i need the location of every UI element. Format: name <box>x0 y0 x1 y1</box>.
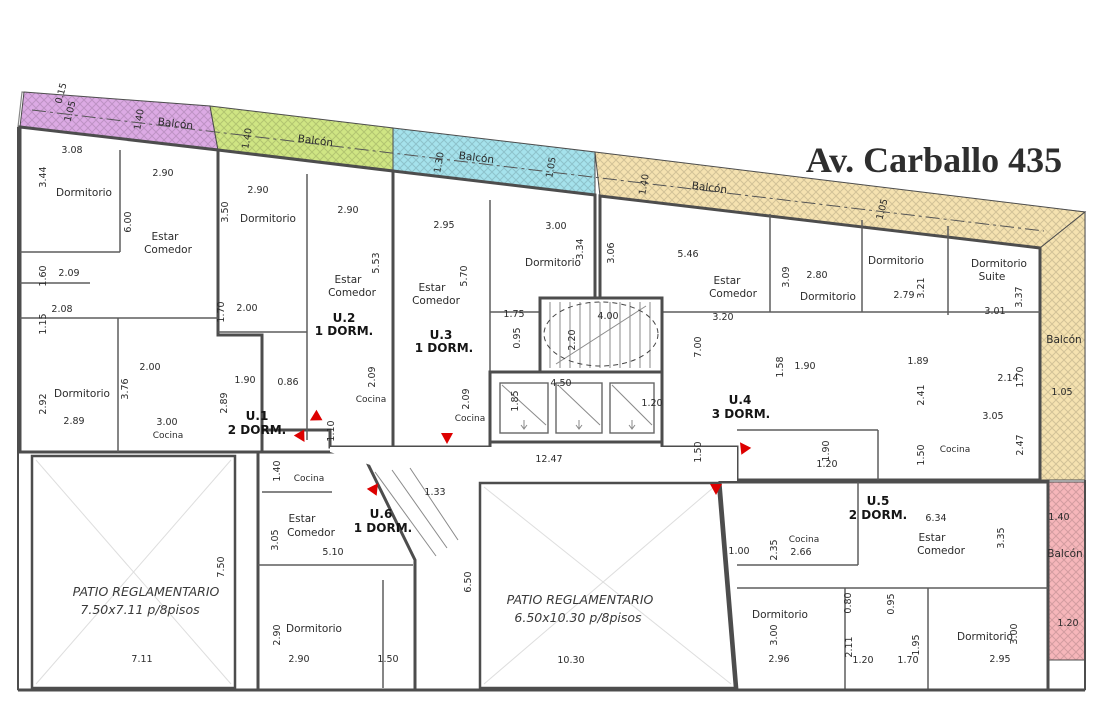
unit-label: 1 DORM. <box>354 521 412 535</box>
patio-center <box>480 483 735 688</box>
dimension-label: 7.11 <box>131 654 152 665</box>
unit-label: 2 DORM. <box>228 423 286 437</box>
room-label: Estar <box>335 274 363 286</box>
room-label: Estar <box>919 532 947 544</box>
dimension-label: 2.09 <box>461 388 472 409</box>
unit-label: U.5 <box>867 494 890 508</box>
dimension-label: 1.70 <box>1015 366 1026 387</box>
dimension-label: 3.00 <box>545 221 566 232</box>
dimension-label: 7.00 <box>693 336 704 357</box>
room-label: Dormitorio <box>957 631 1013 643</box>
unit-label: 3 DORM. <box>712 407 770 421</box>
dimension-label: 1.70 <box>897 655 918 666</box>
dimension-label: 0.80 <box>843 592 854 613</box>
dimension-label: 1.75 <box>503 309 524 320</box>
plan-title: Av. Carballo 435 <box>806 140 1062 180</box>
unit-label: 2 DORM. <box>849 508 907 522</box>
room-label: Dormitorio <box>56 187 112 199</box>
room-label: Cocina <box>455 414 485 424</box>
dimension-label: 2.00 <box>236 303 257 314</box>
dimension-label: 1.50 <box>693 441 704 462</box>
dimension-label: 3.21 <box>916 277 927 298</box>
dimension-label: 1.33 <box>424 487 445 498</box>
dimension-label: 2.08 <box>51 304 72 315</box>
unit-label: U.6 <box>370 507 393 521</box>
dimension-label: 2.80 <box>806 270 827 281</box>
room-label: Balcón <box>1046 334 1081 346</box>
dimension-label: 1.20 <box>1057 618 1078 629</box>
dimension-label: 3.76 <box>120 378 131 399</box>
staircase <box>540 298 662 372</box>
room-label: Dormitorio <box>971 258 1027 270</box>
unit-label: U.2 <box>333 311 356 325</box>
dimension-label: 1.50 <box>916 444 927 465</box>
room-label: Comedor <box>709 288 758 300</box>
dimension-label: 2.90 <box>288 654 309 665</box>
dimension-label: 2.96 <box>768 654 789 665</box>
dimension-label: 2.90 <box>247 185 268 196</box>
dimension-label: 2.00 <box>139 362 160 373</box>
dimension-label: 2.90 <box>152 168 173 179</box>
room-label: Dormitorio <box>800 291 856 303</box>
dimension-label: 1.89 <box>907 356 928 367</box>
dimension-label: 1.00 <box>728 546 749 557</box>
room-label: Dormitorio <box>752 609 808 621</box>
dimension-label: 3.44 <box>38 166 49 187</box>
dimension-label: 5.46 <box>677 249 698 260</box>
patio-label: PATIO REGLAMENTARIO <box>73 584 220 599</box>
dimension-label: 2.89 <box>219 392 230 413</box>
dimension-label: 4.50 <box>550 378 571 389</box>
dimension-label: 1.90 <box>794 361 815 372</box>
dimension-label: 1.70 <box>216 301 227 322</box>
dimension-label: 1.40 <box>1048 512 1069 523</box>
dimension-label: 5.53 <box>371 252 382 273</box>
dimension-label: 3.00 <box>156 417 177 428</box>
dimension-label: 2.90 <box>337 205 358 216</box>
room-label: Estar <box>714 275 742 287</box>
floor-plan: Av. Carballo 4351.050.151.40Balcón3.083.… <box>0 0 1107 711</box>
dimension-label: 1.10 <box>326 420 337 441</box>
dimension-label: 2.35 <box>769 539 780 560</box>
room-label: Cocina <box>356 395 386 405</box>
dimension-label: 1.15 <box>38 313 49 334</box>
dimension-label: 1.20 <box>852 655 873 666</box>
room-label: Cocina <box>153 431 183 441</box>
dimension-label: 1.58 <box>775 356 786 377</box>
room-label: Comedor <box>287 527 336 539</box>
dimension-label: 3.37 <box>1014 286 1025 307</box>
room-label: Dormitorio <box>240 213 296 225</box>
room-label: Cocina <box>789 535 819 545</box>
room-label: Cocina <box>940 445 970 455</box>
unit-label: 1 DORM. <box>315 324 373 338</box>
dimension-label: 2.09 <box>58 268 79 279</box>
dimension-label: 5.70 <box>459 265 470 286</box>
unit-label: U.4 <box>729 393 752 407</box>
dimension-label: 3.06 <box>606 242 617 263</box>
room-label: Dormitorio <box>868 255 924 267</box>
dimension-label: 3.50 <box>220 201 231 222</box>
dimension-label: 1.60 <box>38 265 49 286</box>
dimension-label: 0.95 <box>512 327 523 348</box>
dimension-label: 3.00 <box>769 624 780 645</box>
dimension-label: 2.95 <box>989 654 1010 665</box>
room-label: Suite <box>979 271 1006 283</box>
dimension-label: 0.86 <box>277 377 298 388</box>
room-label: Cocina <box>294 474 324 484</box>
dimension-label: 1.40 <box>272 460 283 481</box>
unit-label: U.3 <box>430 328 453 342</box>
unit-u5-balcony-hatch <box>1048 482 1085 660</box>
dimension-label: 12.47 <box>535 454 562 465</box>
room-label: Comedor <box>412 295 461 307</box>
dimension-label: 2.41 <box>916 384 927 405</box>
dimension-label: 3.35 <box>996 527 1007 548</box>
dimension-label: 2.90 <box>272 624 283 645</box>
dimension-label: 10.30 <box>557 655 584 666</box>
dimension-label: 1.85 <box>510 390 521 411</box>
dimension-label: 5.10 <box>322 547 343 558</box>
dimension-label: 3.05 <box>270 529 281 550</box>
dimension-label: 7.50 <box>216 556 227 577</box>
room-label: Estar <box>419 282 447 294</box>
room-label: Balcón <box>1047 548 1082 560</box>
dimension-label: 6.00 <box>123 211 134 232</box>
dimension-label: 2.09 <box>367 366 378 387</box>
dimension-label: 2.95 <box>433 220 454 231</box>
patio-label: 7.50x7.11 p/8pisos <box>80 602 200 617</box>
dimension-label: 3.08 <box>61 145 82 156</box>
dimension-label: 1.90 <box>234 375 255 386</box>
dimension-label: 4.00 <box>597 311 618 322</box>
dimension-label: 1.20 <box>641 398 662 409</box>
room-label: Estar <box>289 513 317 525</box>
dimension-label: 1.95 <box>911 634 922 655</box>
unit-label: 1 DORM. <box>415 341 473 355</box>
dimension-label: 0.95 <box>886 593 897 614</box>
dimension-label: 3.01 <box>984 306 1005 317</box>
dimension-label: 3.05 <box>982 411 1003 422</box>
dimension-label: 3.09 <box>781 266 792 287</box>
dimension-label: 2.66 <box>790 547 811 558</box>
dimension-label: 2.20 <box>567 329 578 350</box>
floor-plan-page: Av. Carballo 4351.050.151.40Balcón3.083.… <box>0 0 1107 711</box>
dimension-label: 2.47 <box>1015 434 1026 455</box>
dimension-label: 6.50 <box>463 571 474 592</box>
room-label: Dormitorio <box>286 623 342 635</box>
dimension-label: 3.00 <box>1009 623 1020 644</box>
dimension-label: 1.20 <box>816 459 837 470</box>
dimension-label: 2.79 <box>893 290 914 301</box>
room-label: Dormitorio <box>525 257 581 269</box>
room-label: Comedor <box>144 244 193 256</box>
patio-label: 6.50x10.30 p/8pisos <box>514 610 642 625</box>
unit-label: U.1 <box>246 409 269 423</box>
dimension-label: 2.92 <box>38 393 49 414</box>
dimension-label: 1.50 <box>377 654 398 665</box>
dimension-label: 1.05 <box>1051 387 1072 398</box>
dimension-label: 2.89 <box>63 416 84 427</box>
room-label: Comedor <box>328 287 377 299</box>
room-label: Estar <box>152 231 180 243</box>
dimension-label: 6.34 <box>925 513 946 524</box>
dimension-label: 3.20 <box>712 312 733 323</box>
room-label: Dormitorio <box>54 388 110 400</box>
patio-label: PATIO REGLAMENTARIO <box>507 592 654 607</box>
room-label: Comedor <box>917 545 966 557</box>
